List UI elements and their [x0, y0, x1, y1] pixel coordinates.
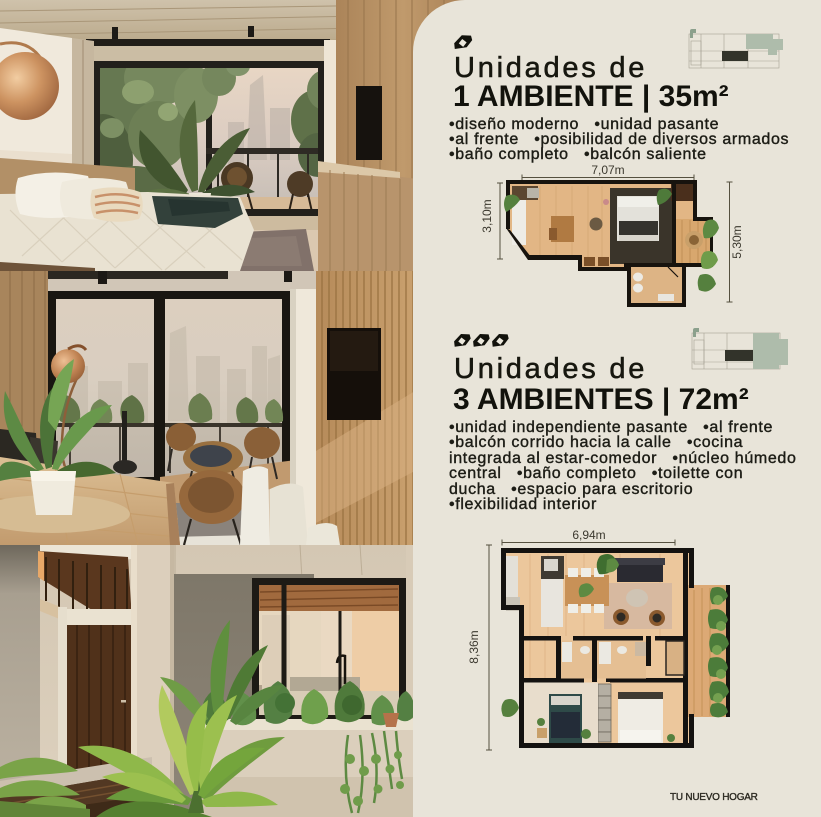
svg-text:8,36m: 8,36m: [467, 630, 481, 663]
svg-text:5,30m: 5,30m: [730, 225, 744, 258]
svg-text:7,07m: 7,07m: [591, 163, 624, 177]
svg-text:6,94m: 6,94m: [572, 528, 605, 542]
svg-text:3,10m: 3,10m: [480, 199, 494, 232]
